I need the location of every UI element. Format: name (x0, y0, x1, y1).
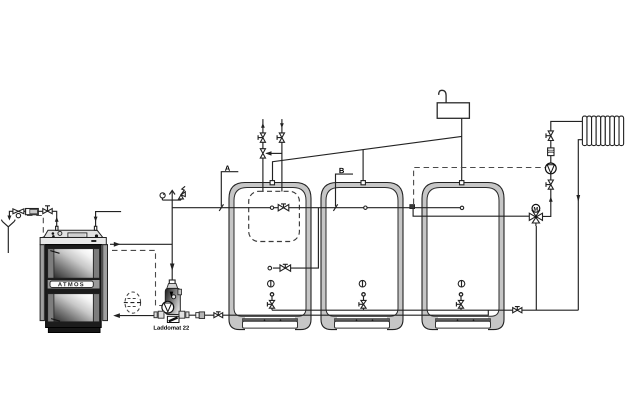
svg-text:M: M (533, 207, 538, 213)
svg-text:ATMOS: ATMOS (58, 281, 85, 288)
svg-text:A: A (225, 164, 231, 173)
svg-text:Laddomat 22: Laddomat 22 (153, 325, 189, 332)
svg-text:B: B (339, 166, 345, 175)
